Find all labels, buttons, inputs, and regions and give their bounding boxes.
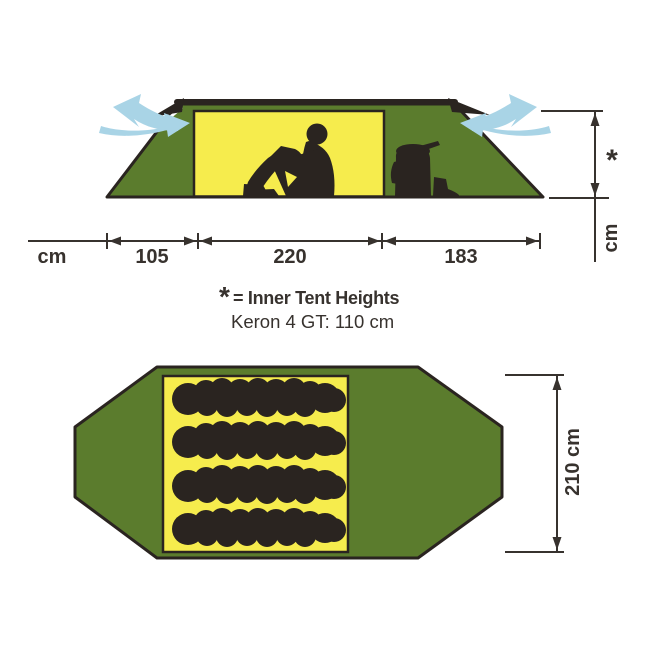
- arrowhead-icon: [184, 237, 196, 246]
- dim-value-220: 220: [273, 246, 306, 268]
- dim-value-183: 183: [444, 246, 477, 268]
- diagram-canvas: cm 105 220 183 * cm * = Inner Tent Heigh…: [0, 0, 650, 650]
- arrowhead-icon: [368, 237, 380, 246]
- height-unit-label: cm: [600, 224, 622, 253]
- inner-tent-height-note: * = Inner Tent Heights Keron 4 GT: 110 c…: [219, 281, 399, 332]
- arrowhead-icon: [109, 237, 121, 246]
- length-dimension: 210 cm: [505, 375, 584, 552]
- height-dimension: * cm: [541, 111, 622, 262]
- height-asterisk-marker: *: [606, 144, 618, 177]
- width-dimension-lines: cm 105 220 183: [28, 233, 540, 268]
- arrowhead-icon: [591, 113, 600, 126]
- arrowhead-icon: [553, 537, 562, 550]
- arrowhead-icon: [526, 237, 538, 246]
- length-value-label: 210 cm: [562, 428, 584, 496]
- unit-label: cm: [38, 246, 67, 268]
- side-view-diagram: [99, 94, 551, 197]
- tent-spec-diagram: cm 105 220 183 * cm * = Inner Tent Heigh…: [0, 0, 650, 650]
- note-model-line: Keron 4 GT: 110 cm: [231, 311, 394, 332]
- arrowhead-icon: [553, 377, 562, 390]
- note-asterisk-marker: *: [219, 281, 230, 312]
- arrowhead-icon: [591, 183, 600, 196]
- arrowhead-icon: [200, 237, 212, 246]
- arrowhead-icon: [384, 237, 396, 246]
- dim-value-105: 105: [135, 246, 168, 268]
- note-heading: = Inner Tent Heights: [233, 288, 399, 308]
- top-view-diagram: [75, 367, 502, 558]
